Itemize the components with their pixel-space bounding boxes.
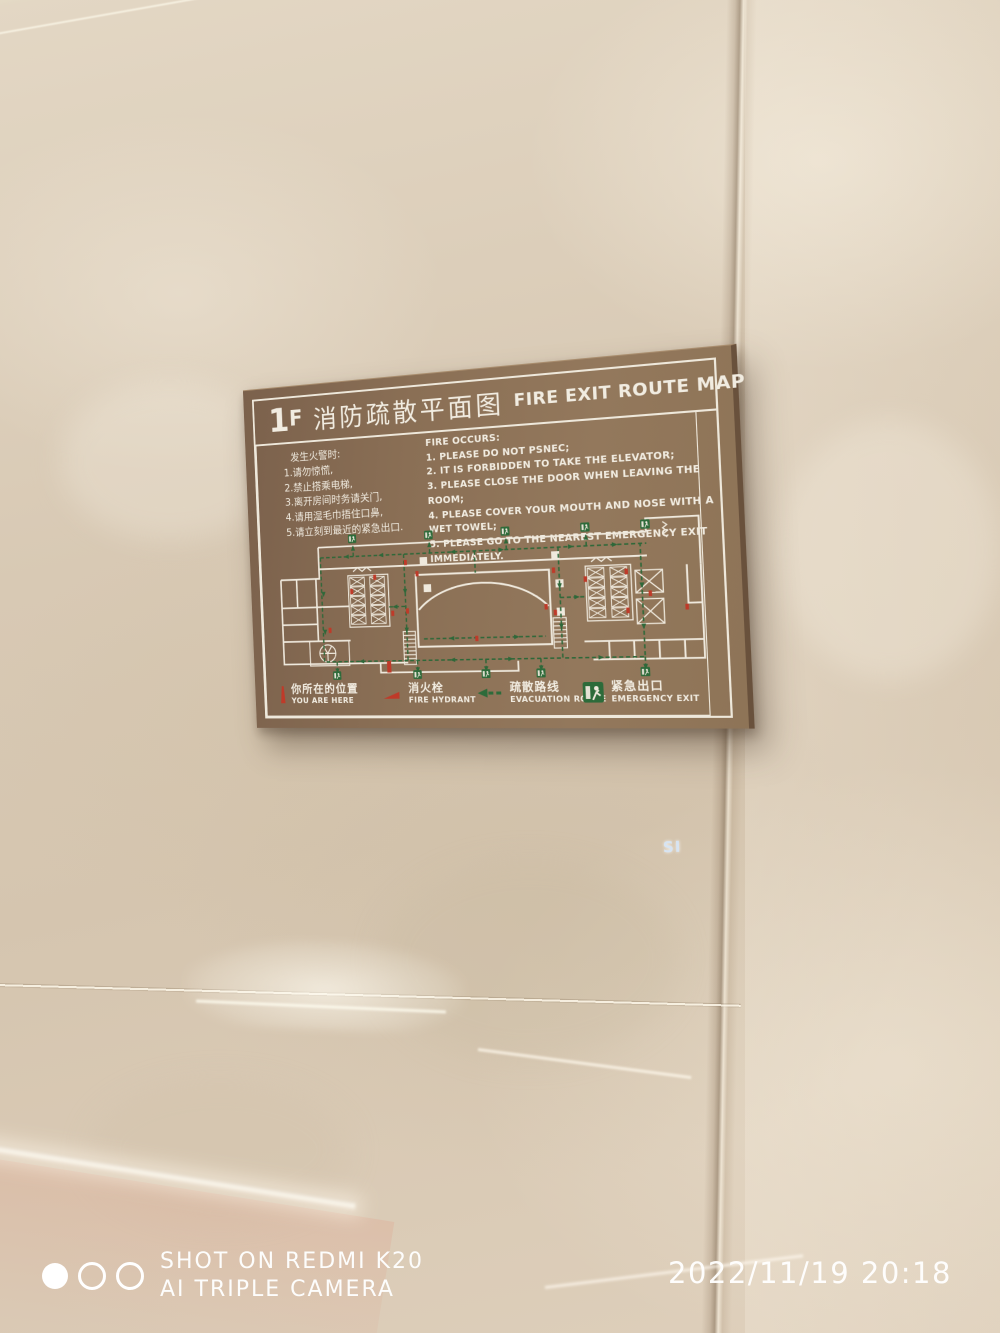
camera-dot-filled-icon	[42, 1263, 68, 1289]
emergency-exit-icon	[583, 682, 605, 703]
floor-suffix: F	[289, 409, 303, 431]
legend-item-fire-hydrant: 消火栓 FIRE HYDRANT	[381, 675, 477, 711]
watermark-line1: SHOT ON REDMI K20	[160, 1248, 424, 1276]
wall-sticker: SI	[663, 838, 682, 857]
you-are-here-marker	[387, 661, 392, 673]
stair-coil-vertical	[662, 521, 667, 537]
legend: 你所在的位置 YOU ARE HERE 消火栓 FIRE HYDRANT	[280, 672, 703, 711]
camera-watermark: SHOT ON REDMI K20 AI TRIPLE CAMERA	[42, 1248, 424, 1303]
photo-timestamp: 2022/11/19 20:18	[668, 1256, 952, 1290]
evacuation-routes	[320, 532, 652, 674]
fire-hydrant-icon	[381, 687, 402, 701]
top-left-tile-band-line	[0, 0, 286, 36]
title-english: FIRE EXIT ROUTE MAP	[513, 371, 746, 411]
watermark-line2: AI TRIPLE CAMERA	[160, 1276, 424, 1304]
photo-of-marble-wall: SI 1 F 消防疏散平面图 FIRE EXIT ROUTE MAP 发生火警时…	[0, 0, 1000, 1333]
right-tile-panel	[745, 0, 1000, 1333]
legend-label-en: YOU ARE HERE	[291, 696, 359, 706]
camera-dot-ring-icon	[78, 1262, 106, 1290]
you-are-here-icon	[280, 686, 285, 703]
camera-dots-icon	[42, 1262, 144, 1290]
floor-number: 1	[268, 404, 290, 438]
light-reflection	[184, 935, 467, 1035]
legend-label-zh: 消火栓	[408, 682, 476, 696]
legend-item-you-are-here: 你所在的位置 YOU ARE HERE	[280, 677, 359, 712]
legend-label-zh: 你所在的位置	[291, 683, 359, 697]
floor-plan	[262, 502, 722, 685]
stair-shaft	[403, 618, 568, 665]
sign-board: 1 F 消防疏散平面图 FIRE EXIT ROUTE MAP 发生火警时: 1…	[243, 344, 755, 729]
fire-exit-route-map-sign: 1 F 消防疏散平面图 FIRE EXIT ROUTE MAP 发生火警时: 1…	[243, 344, 755, 729]
legend-label-zh: 紧急出口	[611, 679, 700, 694]
route-arrows	[320, 531, 649, 674]
legend-item-emergency-exit: 紧急出口 EMERGENCY EXIT	[582, 672, 700, 710]
legend-label-en: FIRE HYDRANT	[409, 695, 476, 705]
left-elevator-bank	[347, 566, 390, 627]
camera-dot-ring-icon	[116, 1262, 144, 1290]
plan-walls	[279, 516, 706, 674]
evacuation-route-icon	[475, 686, 503, 700]
legend-label-en: EMERGENCY EXIT	[611, 694, 700, 705]
central-hall	[416, 570, 553, 647]
sign-content-panel: 发生火警时: 1.请勿惊慌, 2.禁止搭乘电梯, 3.离开房间时务请关门, 4.…	[256, 410, 711, 717]
